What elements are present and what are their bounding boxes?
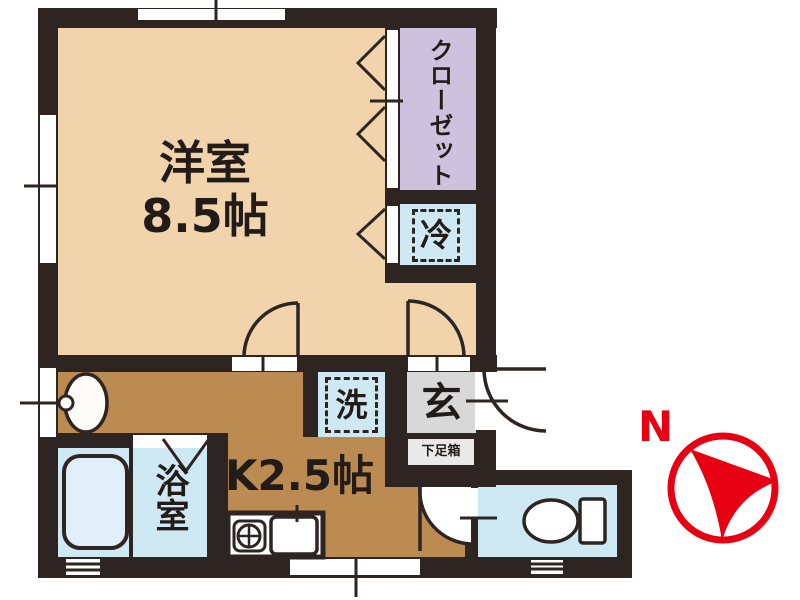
compass-north-label: N	[638, 402, 673, 451]
compass-needle-icon	[690, 449, 778, 541]
wall-refrigerator-bottom	[385, 265, 496, 283]
compass	[671, 436, 778, 541]
laundry-box: 洗	[325, 377, 378, 433]
main-room-label: 洋室	[141, 137, 269, 190]
room-toilet	[478, 485, 617, 557]
refrigerator-door-opening	[385, 204, 400, 265]
main-room-size: 8.5帖	[141, 190, 269, 243]
main-room-label-group: 洋室 8.5帖	[115, 130, 295, 250]
door-opening-toilet	[465, 488, 478, 518]
entrance-label-box: 玄	[407, 374, 476, 431]
shoe-box: 下足箱	[406, 437, 476, 467]
laundry-label: 洗	[335, 387, 367, 424]
window-top	[138, 9, 285, 20]
wall-toilet-top	[465, 470, 632, 485]
window-left-lower	[40, 368, 56, 437]
hall-before-toilet	[400, 487, 465, 557]
entrance-label: 玄	[422, 380, 462, 426]
door-opening-bathroom	[133, 435, 207, 448]
refrigerator-label: 冷	[420, 217, 452, 254]
wall-closet-refrigerator	[385, 190, 496, 204]
shoe-box-label: 下足箱	[421, 445, 460, 460]
floor-plan: 下足箱 冷 洗	[0, 0, 800, 600]
window-kitchen-bottom	[290, 559, 420, 575]
door-opening-genkan	[408, 357, 470, 371]
wall-left	[38, 8, 58, 578]
door-opening-kitchen	[232, 357, 297, 371]
entrance-door-opening	[475, 372, 497, 430]
bathroom-label: 浴室	[152, 463, 188, 555]
kitchen-label: K2.5帖	[225, 452, 374, 500]
line-tub-divider	[129, 448, 133, 557]
window-bathroom-bottom	[66, 559, 100, 575]
compass-circle	[671, 436, 775, 540]
refrigerator-box: 冷	[412, 209, 460, 262]
closet-label: クローゼット	[424, 38, 452, 188]
wall-laundry-left	[303, 355, 318, 437]
closet-folding-door	[385, 28, 400, 190]
window-toilet-bottom	[531, 560, 563, 574]
window-left-upper	[40, 115, 56, 263]
